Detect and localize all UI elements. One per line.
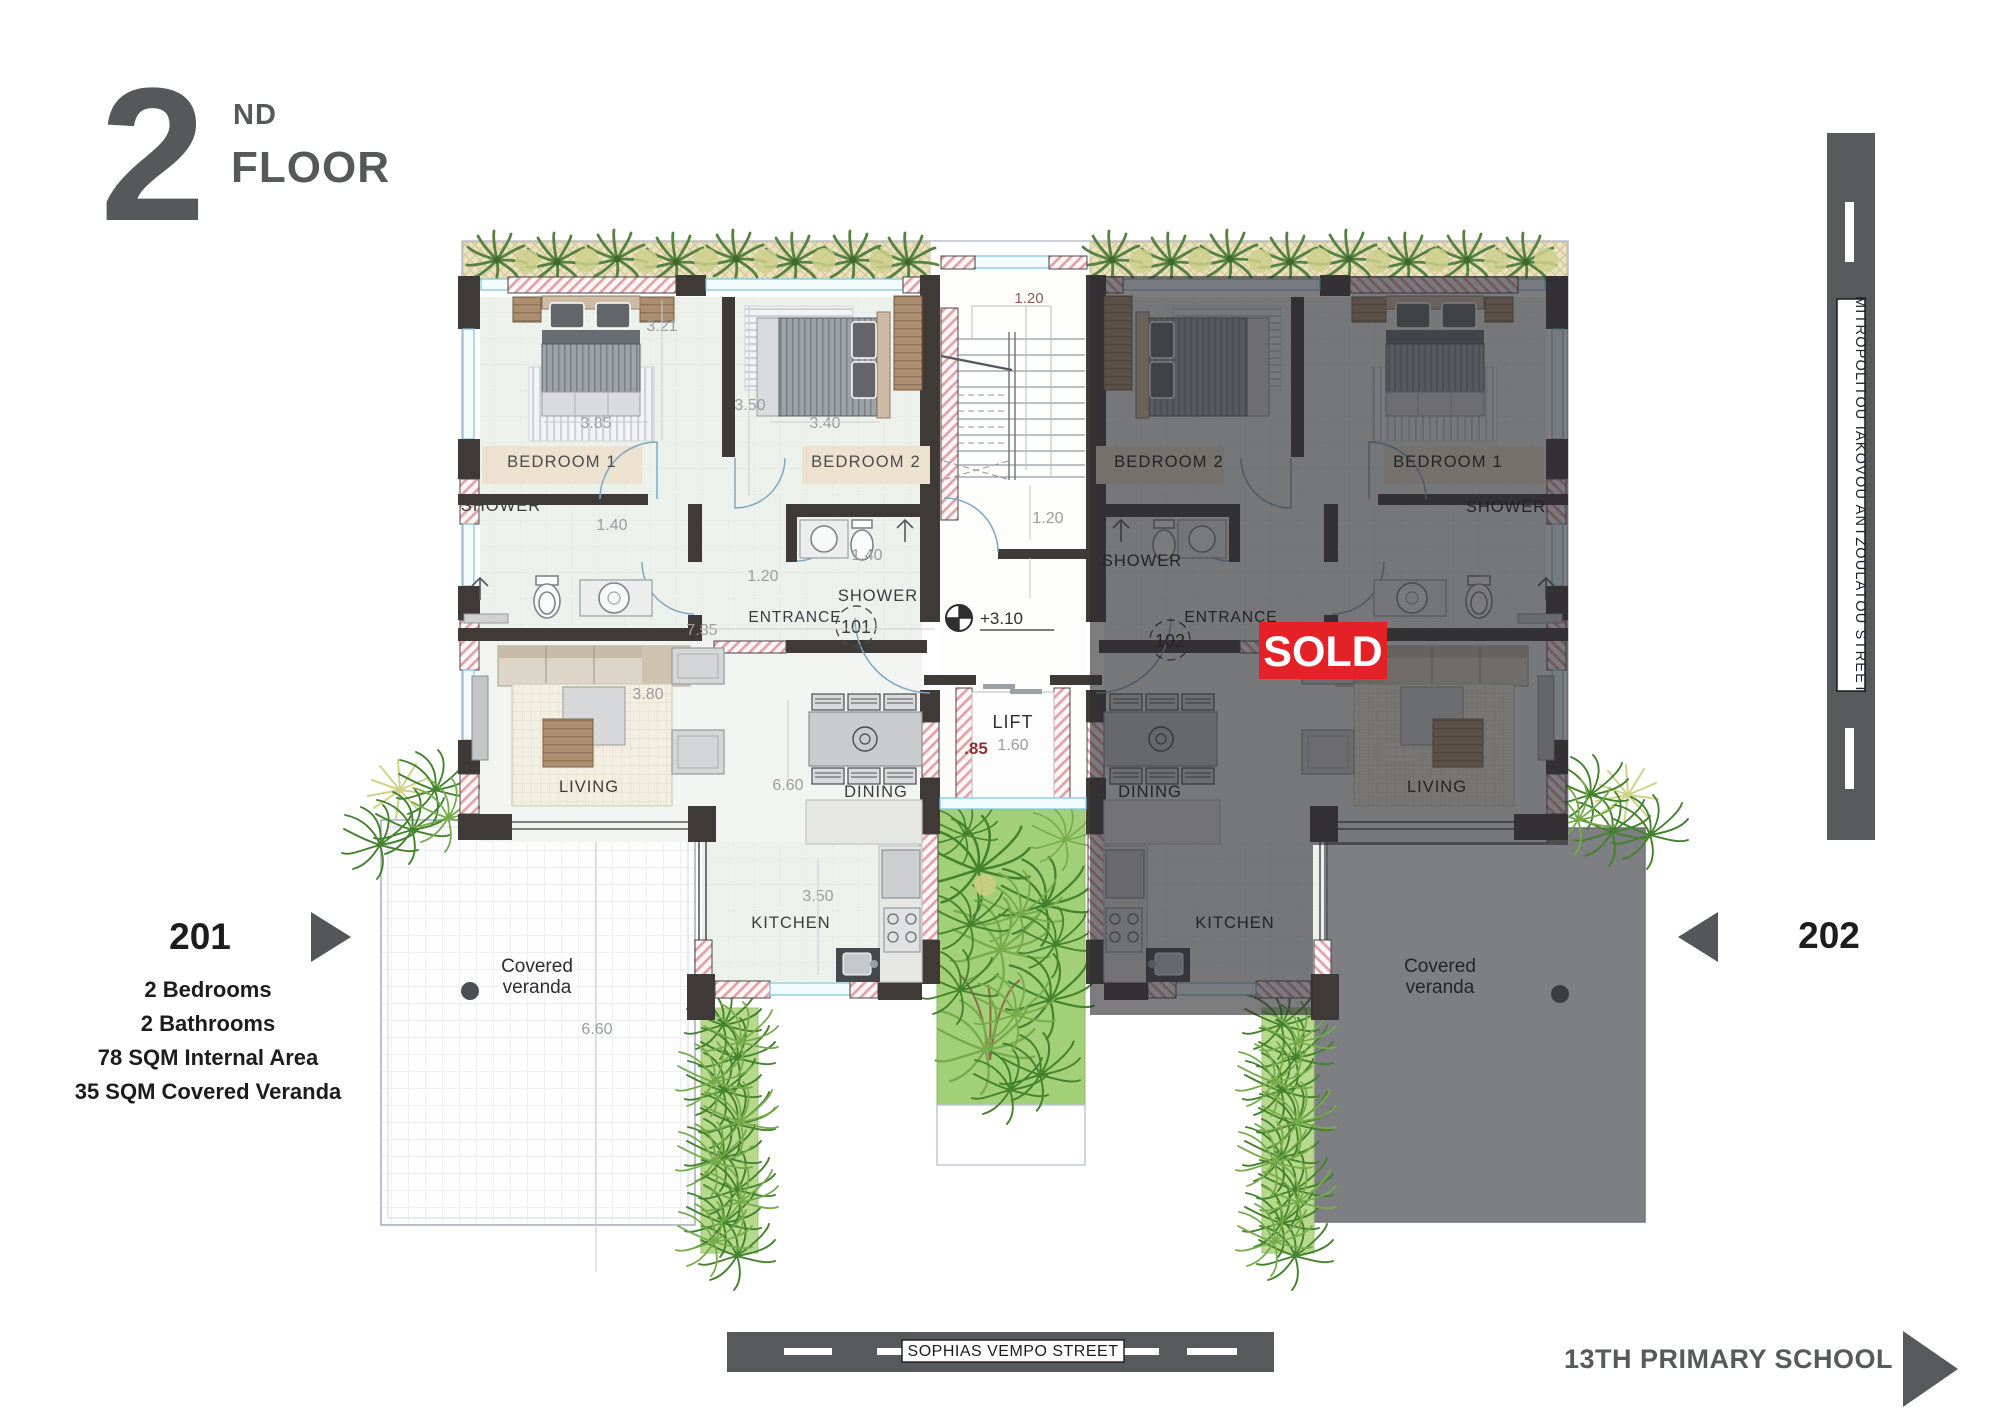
svg-text:+3.10: +3.10: [980, 609, 1023, 628]
svg-text:ENTRANCE: ENTRANCE: [748, 609, 841, 626]
svg-text:SOPHIAS VEMPO STREET: SOPHIAS VEMPO STREET: [908, 1343, 1119, 1360]
svg-text:LIVING: LIVING: [1407, 778, 1467, 796]
svg-text:SHOWER: SHOWER: [1102, 552, 1182, 570]
svg-text:1.20: 1.20: [1032, 510, 1063, 527]
svg-text:202: 202: [1798, 915, 1860, 956]
svg-text:102: 102: [1155, 631, 1185, 651]
svg-text:13TH PRIMARY SCHOOL: 13TH PRIMARY SCHOOL: [1564, 1344, 1893, 1374]
svg-text:1.40: 1.40: [596, 517, 627, 534]
svg-text:veranda: veranda: [503, 977, 572, 998]
svg-text:1.40: 1.40: [851, 547, 882, 564]
svg-text:3.40: 3.40: [809, 415, 840, 432]
svg-text:FLOOR: FLOOR: [231, 143, 390, 192]
svg-text:veranda: veranda: [1406, 977, 1475, 998]
svg-text:3.80: 3.80: [632, 686, 663, 703]
svg-text:2: 2: [100, 49, 206, 261]
svg-text:1.60: 1.60: [997, 737, 1028, 754]
svg-text:1.20: 1.20: [1014, 290, 1043, 307]
svg-text:BEDROOM 2: BEDROOM 2: [811, 453, 921, 471]
svg-text:LIFT: LIFT: [992, 712, 1033, 732]
svg-text:BEDROOM 2: BEDROOM 2: [1114, 453, 1224, 471]
svg-text:DINING: DINING: [1118, 783, 1182, 801]
svg-text:1.20: 1.20: [747, 568, 778, 585]
svg-text:KITCHEN: KITCHEN: [1195, 914, 1274, 932]
svg-text:2 Bedrooms: 2 Bedrooms: [144, 977, 271, 1002]
svg-text:LIVING: LIVING: [559, 778, 619, 796]
svg-text:78 SQM Internal Area: 78 SQM Internal Area: [98, 1045, 319, 1070]
svg-text:101: 101: [841, 617, 871, 637]
svg-text:SHOWER: SHOWER: [838, 587, 918, 605]
svg-text:ND: ND: [233, 99, 277, 131]
svg-text:35 SQM Covered Veranda: 35 SQM Covered Veranda: [75, 1079, 342, 1104]
svg-text:7.35: 7.35: [686, 622, 717, 639]
svg-text:SHOWER: SHOWER: [1466, 498, 1546, 516]
svg-text:3.50: 3.50: [734, 397, 765, 414]
svg-text:6.60: 6.60: [581, 1021, 612, 1038]
svg-text:BEDROOM 1: BEDROOM 1: [507, 453, 617, 471]
svg-text:2 Bathrooms: 2 Bathrooms: [141, 1011, 275, 1036]
svg-text:SOLD: SOLD: [1263, 628, 1382, 676]
svg-text:.85: .85: [964, 739, 988, 758]
svg-text:MITROPOLITOU IAKOVOU ANTZOULAT: MITROPOLITOU IAKOVOU ANTZOULATOU STREET: [1852, 296, 1868, 694]
svg-text:3.85: 3.85: [580, 415, 611, 432]
svg-text:KITCHEN: KITCHEN: [751, 914, 830, 932]
svg-text:BEDROOM 1: BEDROOM 1: [1393, 453, 1503, 471]
svg-text:SHOWER: SHOWER: [461, 497, 541, 515]
svg-text:201: 201: [169, 916, 231, 957]
svg-text:DINING: DINING: [844, 783, 908, 801]
svg-text:Covered: Covered: [1404, 956, 1476, 977]
svg-text:Covered: Covered: [501, 956, 573, 977]
